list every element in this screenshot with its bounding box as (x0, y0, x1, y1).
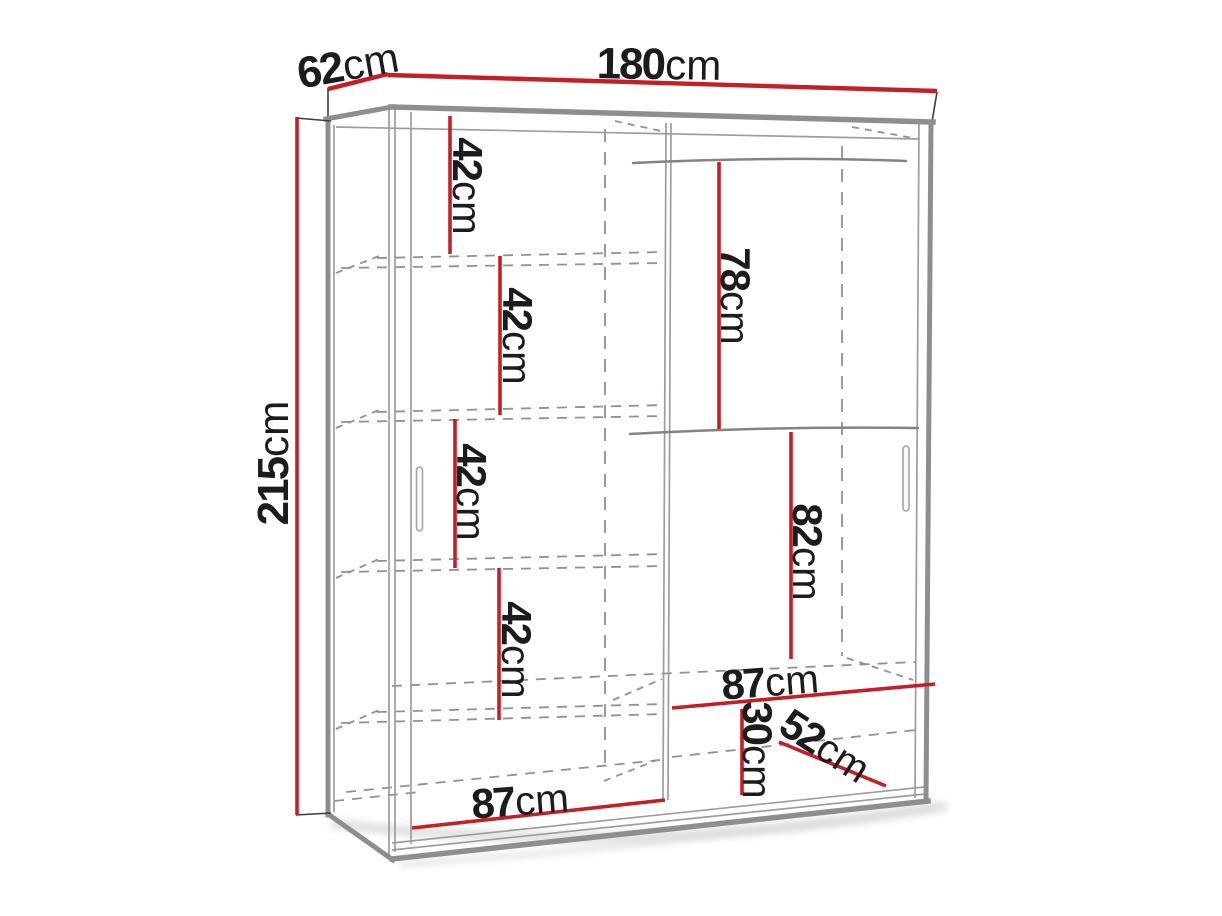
dimension-label-shelf-gap-3: 42cm (450, 443, 492, 540)
dimension-label-total-width: 180cm (596, 42, 721, 88)
top-inner-edge (336, 127, 919, 139)
center-divider-right (668, 123, 671, 800)
wardrobe-dimension-diagram: 180cm 62cm 215cm 42cm 42cm 42cm 42cm 78c… (0, 0, 1222, 916)
back-right-corner-edge (932, 92, 937, 122)
dimension-label-shelf-gap-2: 42cm (496, 287, 538, 384)
dimension-label-right-bottom-gap: 30cm (736, 701, 778, 798)
right-middle-shelf (630, 428, 918, 434)
hidden-interior-lines (334, 121, 916, 801)
dimension-label-shelf-gap-1: 42cm (446, 137, 488, 234)
dimension-label-right-width: 87cm (720, 657, 820, 707)
center-divider-left (663, 123, 666, 800)
top-front-edge (391, 107, 933, 122)
dimension-label-total-height: 215cm (252, 401, 296, 526)
right-top-shelf (633, 159, 906, 163)
top-left-diagonal-edge (326, 107, 392, 119)
dimension-label-left-width: 87cm (470, 776, 570, 826)
wardrobe-drawing (0, 0, 1222, 916)
dimension-label-right-mid-section: 82cm (786, 503, 828, 600)
left-door-handle (417, 467, 423, 531)
dimension-label-right-top-section: 78cm (714, 247, 756, 344)
right-door-handle (903, 446, 909, 511)
dimension-label-shelf-gap-4: 42cm (495, 601, 537, 698)
plinth-left-diagonal (328, 814, 393, 860)
right-front-edge (926, 123, 931, 801)
right-inner-edge (915, 124, 919, 798)
